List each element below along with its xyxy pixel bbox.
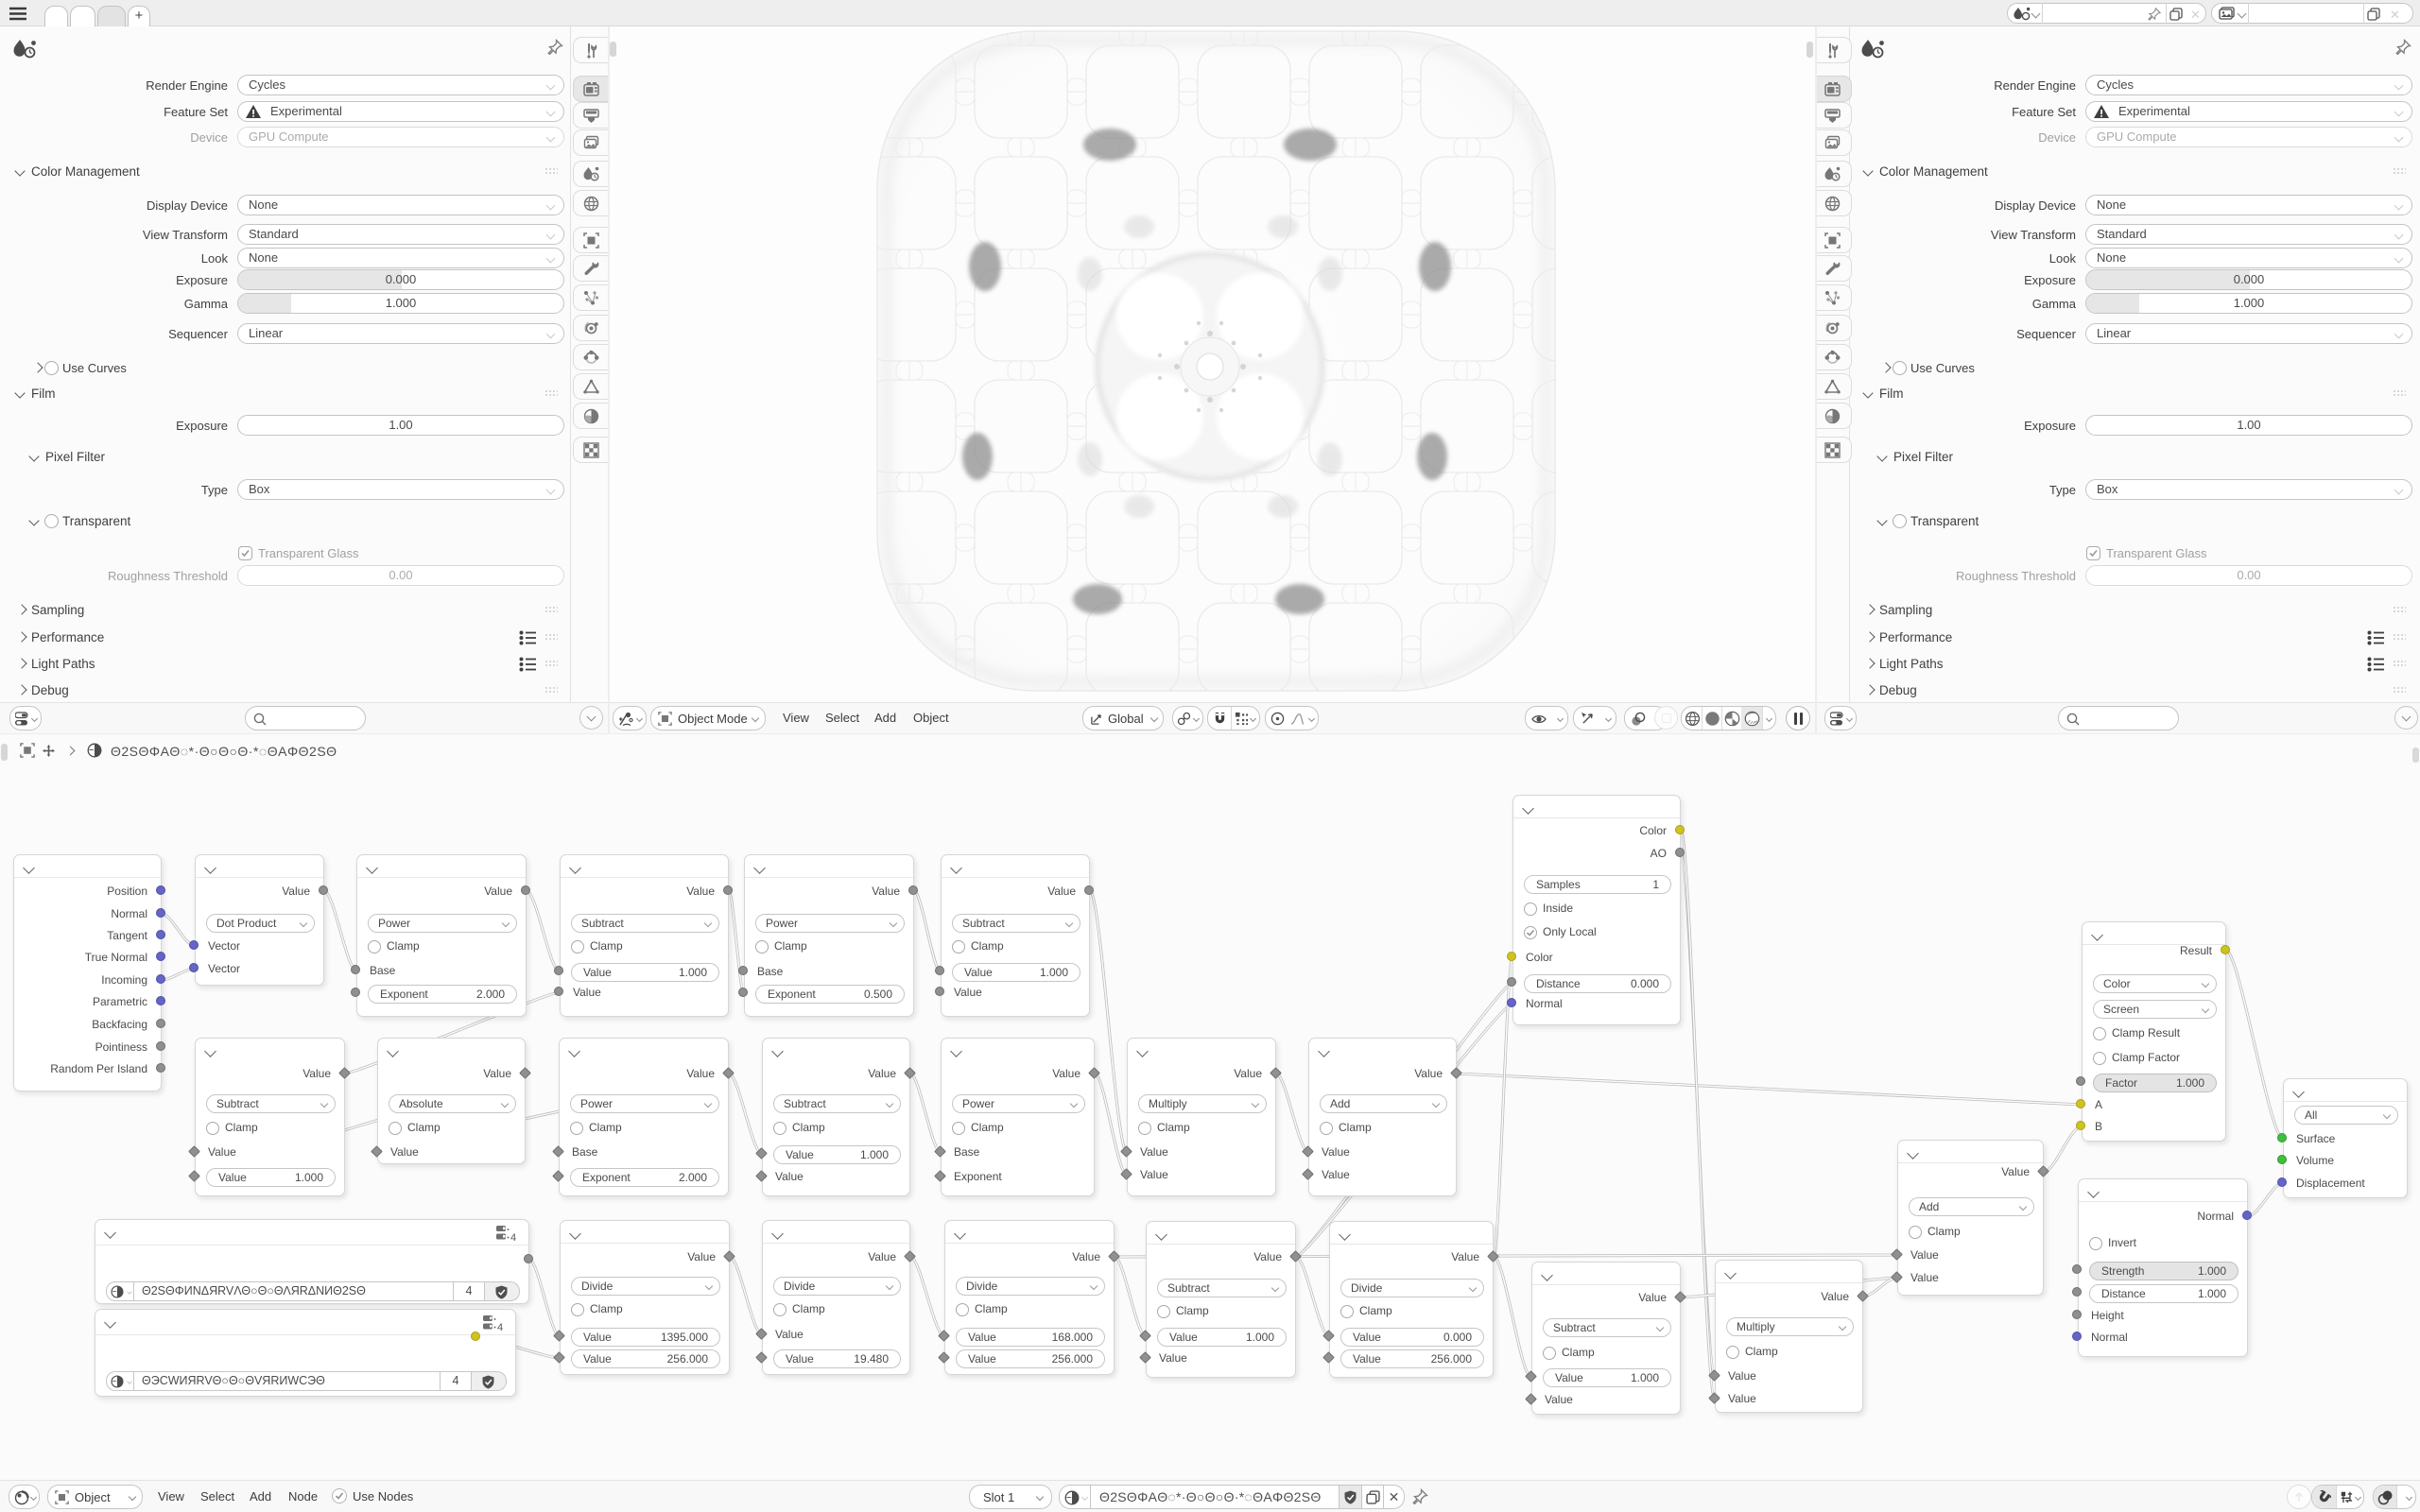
svg-text:4: 4 [510, 1232, 516, 1243]
svg-text:4: 4 [497, 1322, 503, 1332]
